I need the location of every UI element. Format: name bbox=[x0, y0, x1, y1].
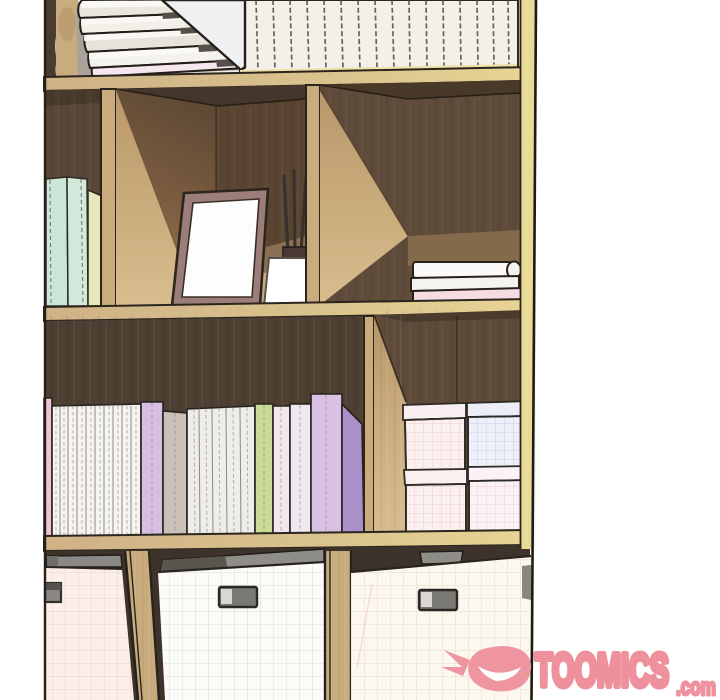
svg-text:.com: .com bbox=[676, 674, 716, 700]
svg-text:TOOMICS: TOOMICS bbox=[535, 644, 669, 696]
